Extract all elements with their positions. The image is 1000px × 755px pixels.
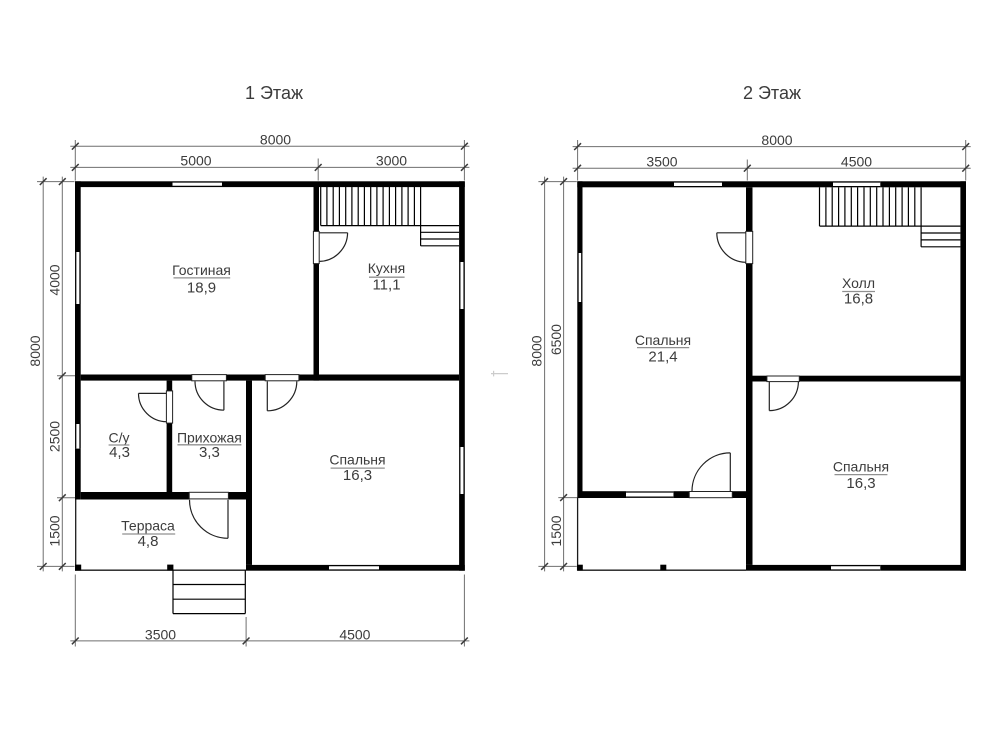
svg-text:8000: 8000 — [260, 132, 291, 148]
svg-text:16,8: 16,8 — [844, 291, 873, 308]
svg-text:4,8: 4,8 — [138, 533, 159, 550]
svg-text:3500: 3500 — [145, 627, 176, 643]
svg-text:1500: 1500 — [548, 515, 564, 546]
svg-text:Спальня: Спальня — [329, 452, 385, 468]
svg-text:3500: 3500 — [646, 153, 677, 169]
svg-text:4500: 4500 — [841, 153, 872, 169]
svg-text:4500: 4500 — [339, 627, 370, 643]
svg-text:8000: 8000 — [27, 335, 43, 366]
svg-text:16,3: 16,3 — [343, 467, 372, 484]
svg-text:Кухня: Кухня — [368, 260, 405, 276]
svg-text:4,3: 4,3 — [109, 444, 130, 461]
svg-text:Гостиная: Гостиная — [172, 262, 231, 278]
svg-text:5000: 5000 — [180, 153, 211, 169]
svg-text:Спальня: Спальня — [833, 458, 889, 474]
svg-text:6500: 6500 — [548, 324, 564, 355]
svg-text:Спальня: Спальня — [635, 332, 691, 348]
svg-text:8000: 8000 — [529, 335, 545, 366]
svg-text:3000: 3000 — [376, 153, 407, 169]
svg-text:Холл: Холл — [842, 275, 875, 291]
svg-text:Прихожая: Прихожая — [177, 429, 242, 445]
svg-text:4000: 4000 — [47, 264, 63, 295]
svg-text:11,1: 11,1 — [372, 277, 400, 294]
svg-text:1 Этаж: 1 Этаж — [245, 83, 303, 103]
svg-text:16,3: 16,3 — [846, 475, 875, 492]
svg-text:Терраса: Терраса — [121, 517, 175, 533]
svg-text:18,9: 18,9 — [187, 279, 216, 296]
svg-text:3,3: 3,3 — [199, 444, 220, 461]
svg-text:21,4: 21,4 — [648, 348, 677, 365]
svg-text:2500: 2500 — [47, 421, 63, 452]
svg-text:2 Этаж: 2 Этаж — [743, 83, 801, 103]
svg-text:8000: 8000 — [761, 132, 792, 148]
svg-text:1500: 1500 — [47, 515, 63, 546]
